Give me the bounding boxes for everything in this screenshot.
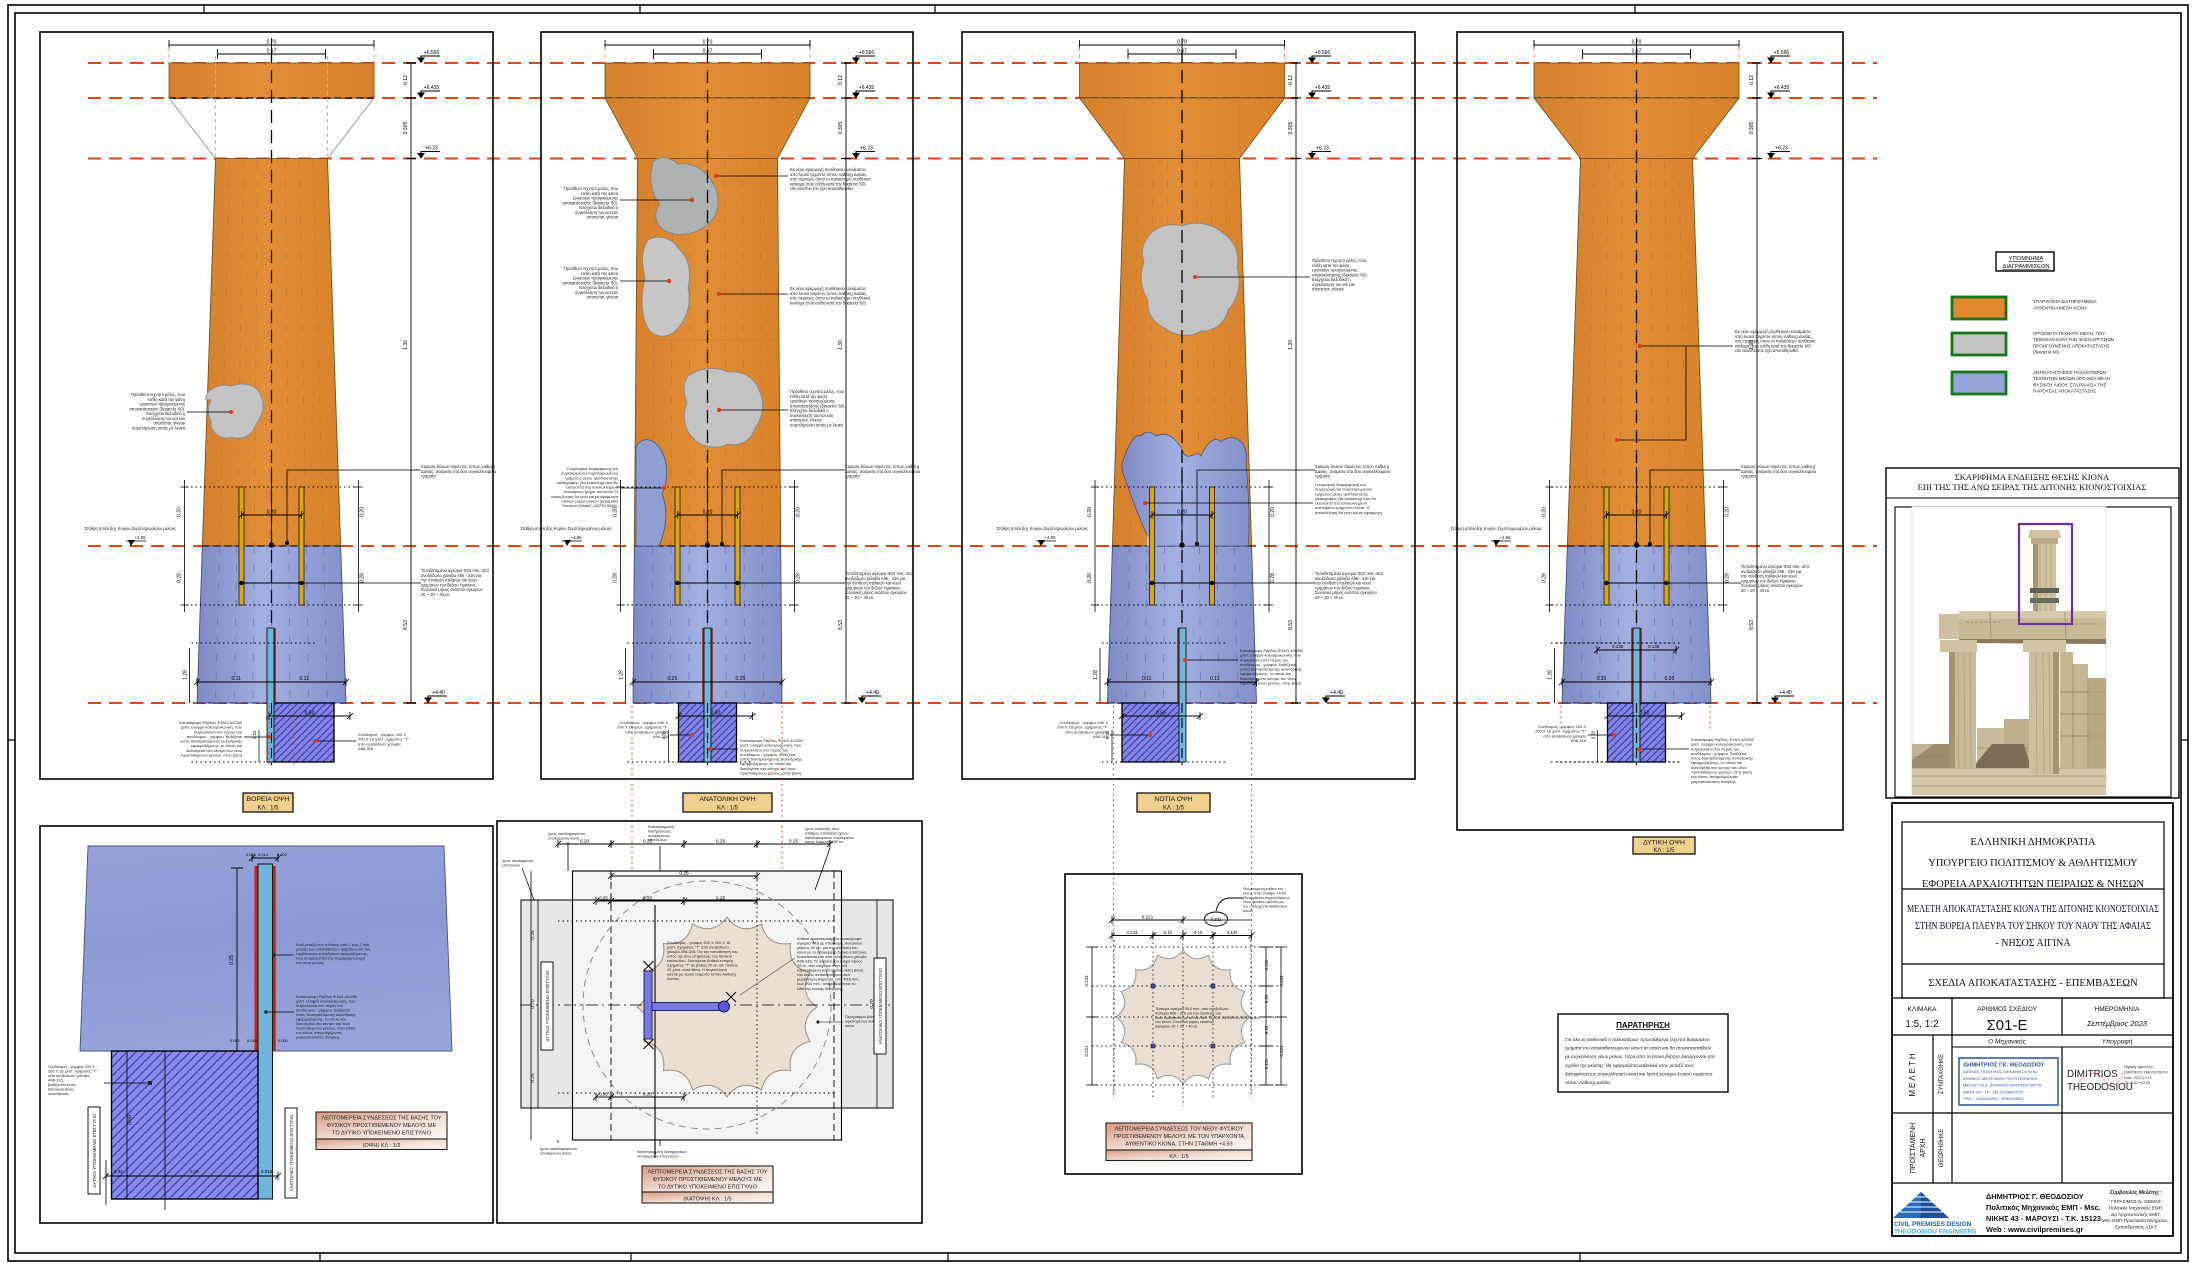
svg-text:0.11: 0.11 — [1142, 676, 1152, 682]
svg-text:0.016: 0.016 — [247, 1038, 258, 1043]
svg-text:ΔΙΑΓΡΑΜΜΙΣΕΩΝ: ΔΙΑΓΡΑΜΜΙΣΕΩΝ — [2002, 264, 2049, 270]
svg-text:0.25: 0.25 — [530, 930, 536, 940]
svg-text:0.233: 0.233 — [1084, 975, 1089, 987]
svg-text:0.28: 0.28 — [613, 573, 619, 583]
svg-text:1:5, 1:2: 1:5, 1:2 — [1905, 1019, 1939, 1030]
svg-text:ΣΤΗΝ ΒΟΡΕΙΑ ΠΛΕΥΡΑ ΤΟΥ ΣΗΚΟΥ Τ: ΣΤΗΝ ΒΟΡΕΙΑ ΠΛΕΥΡΑ ΤΟΥ ΣΗΚΟΥ ΤΟΥ ΝΑΟΥ ΤΗ… — [1915, 921, 2151, 932]
svg-text:0.231: 0.231 — [1211, 917, 1223, 922]
svg-text:ΜΕΛΕΤΗ: ΜΕΛΕΤΗ — [1908, 1051, 1917, 1096]
svg-text:ΛΕΠΤΟΜΕΡΕΙΑ ΣΥΝΔΕΣΕΩΣ ΤΟΥ ΝΕΟΥ: ΛΕΠΤΟΜΕΡΕΙΑ ΣΥΝΔΕΣΕΩΣ ΤΟΥ ΝΕΟΥ ΦΥΣΙΚΟΥ — [1115, 1127, 1244, 1133]
svg-text:0.20: 0.20 — [1725, 507, 1731, 517]
svg-text:ΑΝΑΤΟΛΙΚΟ ΥΠΟΚΕΙΜΕΝΟ ΕΠΙΣΤΥΛΙΟ: ΑΝΑΤΟΛΙΚΟ ΥΠΟΚΕΙΜΕΝΟ ΕΠΙΣΤΥΛΙΟ — [289, 1114, 294, 1191]
svg-text:CIVIL PREMISES DESIGN: CIVIL PREMISES DESIGN — [1894, 1221, 1972, 1228]
svg-text:ΚΛ : 1/5: ΚΛ : 1/5 — [1163, 806, 1185, 812]
svg-text:+4.85: +4.85 — [1044, 535, 1056, 540]
svg-text:ΤΟ ΔΥΤΙΚΟ ΥΠΟΚΕΙΜΕΝΟ ΕΠΙΣΤΥΛΙΟ: ΤΟ ΔΥΤΙΚΟ ΥΠΟΚΕΙΜΕΝΟ ΕΠΙΣΤΥΛΙΟ — [658, 1185, 758, 1191]
svg-text:+6.23: +6.23 — [860, 146, 873, 152]
svg-text:1.28: 1.28 — [1548, 670, 1554, 680]
svg-text:Σεπτέμβριος 2023: Σεπτέμβριος 2023 — [2086, 1019, 2148, 1028]
svg-text:0.001: 0.001 — [230, 1038, 241, 1043]
svg-text:ΑΝΑΤΟΛΙΚΟ ΥΠΟΚΕΙΜΕΝΟ ΕΠΙΣΤΥΛΙΟ: ΑΝΑΤΟΛΙΚΟ ΥΠΟΚΕΙΜΕΝΟ ΕΠΙΣΤΥΛΙΟ — [878, 967, 883, 1044]
svg-text:ΗΜΕΡΟΜΗΝΙΑ: ΗΜΕΡΟΜΗΝΙΑ — [2095, 1006, 2140, 1013]
svg-text:0.016: 0.016 — [261, 1169, 273, 1174]
svg-text:0.25: 0.25 — [530, 1073, 536, 1083]
svg-text:Στάθμη απόληξης Κυρίου Συμπληρ: Στάθμη απόληξης Κυρίου Συμπληρωμένου μέλ… — [85, 526, 176, 531]
svg-text:ΘΕΩΡΗΘΗΚΕ: ΘΕΩΡΗΘΗΚΕ — [1939, 1129, 1945, 1168]
svg-text:+6.435: +6.435 — [859, 85, 875, 91]
svg-text:0.25: 0.25 — [229, 955, 235, 965]
svg-text:ΔΥΤΙΚΟ ΥΠΟΚΕΙΜΕΝΟ ΕΠΙΣΤΥΛΙΟ: ΔΥΤΙΚΟ ΥΠΟΚΕΙΜΕΝΟ ΕΠΙΣΤΥΛΙΟ — [92, 1113, 97, 1187]
svg-text:ΛΕΠΤΟΜΕΡΕΙΑ ΣΥΝΔΕΣΕΩΣ ΤΗΣ ΒΑΣΗ: ΛΕΠΤΟΜΕΡΕΙΑ ΣΥΝΔΕΣΕΩΣ ΤΗΣ ΒΑΣΗΣ ΤΟΥ — [647, 1170, 767, 1176]
svg-text:Στάθμη απόληξης Κυρίου Συμπληρ: Στάθμη απόληξης Κυρίου Συμπληρωμένου μέλ… — [1451, 526, 1542, 531]
svg-text:ΑΡΙΘΜΟΣ ΣΧΕΔΙΟΥ: ΑΡΙΘΜΟΣ ΣΧΕΔΙΟΥ — [1977, 1006, 2038, 1013]
svg-text:ΚΛ : 1/5: ΚΛ : 1/5 — [257, 806, 279, 812]
svg-text:ΠΡΟΪΣΤΑΜΕΝΗ: ΠΡΟΪΣΤΑΜΕΝΗ — [1909, 1123, 1917, 1173]
svg-text:ΚΛ : 1/5: ΚΛ : 1/5 — [1169, 1154, 1188, 1160]
svg-text:0.10: 0.10 — [1264, 994, 1269, 1003]
svg-text:0.11: 0.11 — [300, 676, 310, 682]
svg-text:0.002: 0.002 — [246, 852, 257, 857]
svg-text:0.70: 0.70 — [530, 999, 536, 1009]
svg-text:0.12: 0.12 — [1749, 75, 1755, 85]
svg-text:ΕΛΛΗΝΙΚΗ ΔΗΜΟΚΡΑΤΙΑ: ΕΛΛΗΝΙΚΗ ΔΗΜΟΚΡΑΤΙΑ — [1970, 837, 2096, 848]
svg-text:0.135: 0.135 — [1648, 644, 1660, 649]
svg-text:0.28: 0.28 — [177, 573, 183, 583]
svg-text:1.30: 1.30 — [1288, 340, 1294, 350]
svg-text:ΛΕΠΤΟΜΕΡΕΙΑ ΣΥΝΔΕΣΕΩΣ ΤΗΣ ΒΑΣΗ: ΛΕΠΤΟΜΕΡΕΙΑ ΣΥΝΔΕΣΕΩΣ ΤΗΣ ΒΑΣΗΣ ΤΟΥ — [321, 1116, 441, 1122]
svg-text:Γεωμετρική διαμόρφωση τουσυγκε: Γεωμετρική διαμόρφωση τουσυγκεκριμένου σ… — [1315, 482, 1382, 515]
svg-text:ΕΠΙ ΤΗΣ ΤΗΣ ΑΝΩ ΣΕΙΡΑΣ ΤΗΣ ΔΙΤ: ΕΠΙ ΤΗΣ ΤΗΣ ΑΝΩ ΣΕΙΡΑΣ ΤΗΣ ΔΙΤΟΝΗΣ ΚΙΟΝΟ… — [1918, 482, 2147, 492]
svg-text:+4.85: +4.85 — [1499, 535, 1511, 540]
svg-text:Υπογραφή: Υπογραφή — [2102, 1039, 2133, 1046]
svg-text:+6.435: +6.435 — [1774, 85, 1790, 91]
svg-text:Πολιτικός Μηχανικός ΕΜΠ - Msc.: Πολιτικός Μηχανικός ΕΜΠ - Msc. — [1986, 1203, 2101, 1212]
svg-text:ΦΥΣΙΚΟΥ ΠΡΟΣΤΙΘΕΜΕΝΟΥ ΜΕΛΟΥΣ Μ: ΦΥΣΙΚΟΥ ΠΡΟΣΤΙΘΕΜΕΝΟΥ ΜΕΛΟΥΣ ΜΕ — [327, 1123, 437, 1129]
svg-text:ΝΙΚΗΣ 43 - ΜΑΡΟΥΣΙ - Τ.Κ. 1512: ΝΙΚΗΣ 43 - ΜΑΡΟΥΣΙ - Τ.Κ. 15123 — [1986, 1214, 2101, 1223]
svg-text:ΝΟΤΙΑ ΟΨΗ: ΝΟΤΙΑ ΟΨΗ — [1154, 796, 1192, 803]
svg-text:0.10: 0.10 — [1164, 930, 1173, 935]
svg-text:ΣΥΝΤΑΧΘΗΚΕ: ΣΥΝΤΑΧΘΗΚΕ — [1939, 1054, 1945, 1094]
svg-text:0.20: 0.20 — [1542, 507, 1548, 517]
svg-text:ΠΑΡΑΤΗΡΗΣΗ: ΠΑΡΑΤΗΡΗΣΗ — [1616, 1021, 1670, 1030]
svg-text:0.25: 0.25 — [736, 676, 746, 682]
svg-text:ΣΚΑΡΙΦΗΜΑ ΕΝΔΕΙΞΗΣ ΘΕΣΗΣ ΚΙΟΝΑ: ΣΚΑΡΙΦΗΜΑ ΕΝΔΕΙΞΗΣ ΘΕΣΗΣ ΚΙΟΝΑ — [1955, 472, 2110, 482]
svg-text:+6.566: +6.566 — [1315, 50, 1331, 56]
svg-text:0.12: 0.12 — [403, 75, 409, 85]
svg-text:0.305: 0.305 — [1749, 122, 1755, 135]
svg-text:+4.85: +4.85 — [570, 535, 582, 540]
svg-text:Κατακόρυφη Ράβδος Φ16/1.4/Χ250: Κατακόρυφη Ράβδος Φ16/1.4/Χ250χλστ. ελαφ… — [740, 738, 804, 775]
svg-text:0.20: 0.20 — [177, 507, 183, 517]
svg-text:ΥΠΟΜΝΗΜΑ: ΥΠΟΜΝΗΜΑ — [2009, 256, 2044, 262]
svg-text:ΥΠΑΡΧΟΝΤΑ ΔΙΑΤΗΡΟΥΜΕΝΑΑΥΘΕΝΤΙΚ: ΥΠΑΡΧΟΝΤΑ ΔΙΑΤΗΡΟΥΜΕΝΑΑΥΘΕΝΤΙΚΑ ΜΕΛΗ ΚΙΟ… — [2033, 299, 2096, 311]
svg-text:0.05: 0.05 — [599, 1092, 608, 1097]
svg-text:0.305: 0.305 — [403, 122, 409, 135]
svg-text:0.28: 0.28 — [1725, 573, 1731, 583]
svg-text:DIMITRIOS: DIMITRIOS — [2067, 1069, 2118, 1080]
svg-text:ΒΟΡΕΙΑ ΟΨΗ: ΒΟΡΕΙΑ ΟΨΗ — [247, 796, 290, 803]
svg-text:0.20: 0.20 — [643, 896, 653, 902]
svg-text:ΦΥΣΙΚΟΥ ΠΡΟΣΤΙΘΕΜΕΝΟΥ ΜΕΛΟΥΣ Μ: ΦΥΣΙΚΟΥ ΠΡΟΣΤΙΘΕΜΕΝΟΥ ΜΕΛΟΥΣ ΜΕ — [653, 1177, 763, 1183]
svg-text:8.53: 8.53 — [403, 620, 409, 630]
svg-text:0.20: 0.20 — [1270, 507, 1276, 517]
svg-text:0.25: 0.25 — [716, 896, 726, 902]
svg-text:+6.566: +6.566 — [859, 50, 875, 56]
svg-text:Web : www.civilpremises.gr: Web : www.civilpremises.gr — [1986, 1225, 2083, 1234]
svg-text:ΜΕΛΕΤΗ ΑΠΟΚΑΤΑΣΤΑΣΗΣ ΚΙΟΝΑ ΤΗΣ: ΜΕΛΕΤΗ ΑΠΟΚΑΤΑΣΤΑΣΗΣ ΚΙΟΝΑ ΤΗΣ ΔΙΤΟΝΗΣ Κ… — [1907, 904, 2159, 915]
svg-text:1.28: 1.28 — [1093, 670, 1099, 680]
svg-text:0.11: 0.11 — [1210, 676, 1220, 682]
svg-text:- ΝΗΣΟΣ ΑΙΓΙΝΑ: - ΝΗΣΟΣ ΑΙΓΙΝΑ — [1995, 938, 2071, 949]
svg-text:0.25: 0.25 — [789, 839, 799, 845]
svg-text:0.20: 0.20 — [1087, 507, 1093, 517]
svg-text:0.28: 0.28 — [796, 573, 802, 583]
svg-text:0.50: 0.50 — [1156, 711, 1166, 717]
svg-text:1.28: 1.28 — [619, 670, 625, 680]
svg-text:+4.85: +4.85 — [134, 535, 146, 540]
svg-text:Εκ νέου εφαρμογή συνθετικού κο: Εκ νέου εφαρμογή συνθετικού κονιάματοςαπ… — [790, 286, 871, 305]
svg-text:0.12: 0.12 — [838, 75, 844, 85]
svg-text:ΔΥΤΙΚΗ ΟΨΗ: ΔΥΤΙΚΗ ΟΨΗ — [1643, 840, 1685, 847]
svg-text:0.35: 0.35 — [1597, 676, 1607, 682]
svg-text:ΚΛ : 1/5: ΚΛ : 1/5 — [717, 806, 739, 812]
svg-text:ΑΥΘΕΝΤΙΚΟ ΚΙΟΝΑ, ΣΤΗΝ ΣΤΑΘΜΗ +: ΑΥΘΕΝΤΙΚΟ ΚΙΟΝΑ, ΣΤΗΝ ΣΤΑΘΜΗ +4.93 — [1125, 1142, 1232, 1148]
svg-text:0.221: 0.221 — [1084, 1045, 1089, 1057]
svg-text:0.20: 0.20 — [360, 507, 366, 517]
svg-text:ΣΧΕΔΙΑ ΑΠΟΚΑΤΑΣΤΑΣΗΣ - ΕΠΕΜΒΑΣ: ΣΧΕΔΙΑ ΑΠΟΚΑΤΑΣΤΑΣΗΣ - ΕΠΕΜΒΑΣΕΩΝ — [1928, 978, 2138, 989]
svg-text:0.131: 0.131 — [1227, 930, 1239, 935]
svg-text:ΤΟ ΔΥΤΙΚΟ ΥΠΟΚΕΙΜΕΝΟ ΕΠΙΣΤΥΛΙΟ: ΤΟ ΔΥΤΙΚΟ ΥΠΟΚΕΙΜΕΝΟ ΕΠΙΣΤΥΛΙΟ — [332, 1131, 432, 1137]
svg-text:0.221: 0.221 — [1142, 915, 1154, 920]
svg-text:+6.566: +6.566 — [1774, 50, 1790, 56]
svg-text:Σ01-Ε: Σ01-Ε — [1987, 1017, 2028, 1034]
svg-text:1.30: 1.30 — [403, 340, 409, 350]
svg-text:0.131: 0.131 — [1264, 959, 1269, 970]
svg-text:THEODOSIOU: THEODOSIOU — [2067, 1082, 2133, 1093]
svg-text:ΥΠΟΥΡΓΕΙΟ ΠΟΛΙΤΙΣΜΟΥ & ΑΘΛΗΤΙΣ: ΥΠΟΥΡΓΕΙΟ ΠΟΛΙΤΙΣΜΟΥ & ΑΘΛΗΤΙΣΜΟΥ — [1928, 858, 2138, 869]
svg-text:(ΚΑΤΟΨΗ) ΚΛ : 1/5: (ΚΑΤΟΨΗ) ΚΛ : 1/5 — [683, 1197, 731, 1203]
svg-text:+6.23: +6.23 — [1316, 146, 1329, 152]
svg-text:0.014: 0.014 — [258, 852, 269, 857]
svg-text:Στάθμη απόληξης Κυρίου Συμπληρ: Στάθμη απόληξης Κυρίου Συμπληρωμένου μέλ… — [521, 526, 612, 531]
svg-text:0.28: 0.28 — [1087, 573, 1093, 583]
svg-text:ΔΥΤΙΚΟ ΥΠΟΚΕΙΜΕΝΟ ΕΠΙΣΤΥΛΙΟ: ΔΥΤΙΚΟ ΥΠΟΚΕΙΜΕΝΟ ΕΠΙΣΤΥΛΙΟ — [545, 970, 550, 1041]
svg-text:8.53: 8.53 — [1749, 620, 1755, 630]
svg-text:0.20: 0.20 — [613, 507, 619, 517]
svg-text:8.53: 8.53 — [838, 620, 844, 630]
svg-text:Σύμβουλος Μελέτης :: Σύμβουλος Μελέτης : — [2109, 1190, 2163, 1196]
svg-text:0.305: 0.305 — [838, 122, 844, 135]
svg-text:ΑΝΑΤΟΛΙΚΗ ΟΨΗ: ΑΝΑΤΟΛΙΚΗ ΟΨΗ — [699, 796, 755, 803]
svg-text:THEODOSIOU ENGINEERS: THEODOSIOU ENGINEERS — [1894, 1229, 1977, 1236]
svg-text:ΕΦΟΡΕΙΑ ΑΡΧΑΙΟΤΗΤΩΝ ΠΕΙΡΑΙΩΣ &: ΕΦΟΡΕΙΑ ΑΡΧΑΙΟΤΗΤΩΝ ΠΕΙΡΑΙΩΣ & ΝΗΣΩΝ — [1922, 879, 2144, 890]
svg-text:0.18: 0.18 — [1264, 1025, 1269, 1034]
svg-text:0.33: 0.33 — [252, 730, 257, 739]
svg-text:Κατακόρυφη Ράβδος Φ16/1.4/Χ250: Κατακόρυφη Ράβδος Φ16/1.4/Χ250χλστ. ελαφ… — [1240, 648, 1304, 685]
svg-text:8.53: 8.53 — [1288, 620, 1294, 630]
svg-text:Κατακόρυφη Ράβδος Φ16/1.4/Χ250: Κατακόρυφη Ράβδος Φ16/1.4/Χ250χλστ. ελαφ… — [179, 720, 243, 757]
svg-text:Στάθμη απόληξης Κυρίου Συμπληρ: Στάθμη απόληξης Κυρίου Συμπληρωμένου μέλ… — [997, 526, 1088, 531]
svg-text:+4.40: +4.40 — [1779, 690, 1792, 696]
svg-text:0.11: 0.11 — [232, 676, 242, 682]
svg-text:0.001: 0.001 — [278, 1038, 289, 1043]
svg-text:+6.566: +6.566 — [424, 50, 440, 56]
svg-text:+6.23: +6.23 — [425, 146, 438, 152]
svg-text:0.20: 0.20 — [796, 507, 802, 517]
svg-text:0.25: 0.25 — [668, 676, 678, 682]
svg-text:0.50: 0.50 — [1640, 711, 1650, 717]
svg-text:Ο Μηχανικός: Ο Μηχανικός — [1988, 1038, 2027, 1046]
svg-text:0.05: 0.05 — [599, 896, 608, 901]
svg-text:0.131: 0.131 — [1264, 1058, 1269, 1069]
svg-text:0.50: 0.50 — [127, 1115, 133, 1125]
svg-text:ΔΗΜΗΤΡΙΟΣ Γ. ΘΕΟΔΟΣΙΟΥ: ΔΗΜΗΤΡΙΟΣ Γ. ΘΕΟΔΟΣΙΟΥ — [1986, 1192, 2084, 1201]
svg-text:+6.435: +6.435 — [424, 85, 440, 91]
svg-text:ΚΛΙΜΑΚΑ: ΚΛΙΜΑΚΑ — [1908, 1006, 1938, 1013]
svg-text:0.28: 0.28 — [1270, 573, 1276, 583]
svg-text:0.002: 0.002 — [277, 852, 288, 857]
svg-text:0.25: 0.25 — [679, 871, 689, 877]
svg-text:(ΟΨΗ) ΚΛ : 1/2: (ΟΨΗ) ΚΛ : 1/2 — [363, 1143, 401, 1149]
svg-text:ΚΛ : 1/5: ΚΛ : 1/5 — [1653, 848, 1675, 854]
svg-text:0.12: 0.12 — [1288, 75, 1294, 85]
svg-text:+6.23: +6.23 — [1775, 146, 1788, 152]
svg-text:0.221: 0.221 — [1279, 1045, 1284, 1057]
svg-text:0.20: 0.20 — [580, 839, 590, 845]
svg-text:0.35: 0.35 — [1665, 676, 1675, 682]
svg-text:ΔΗΜΗΤΡΙΟΣ ΓΚ. ΘΕΟΔΟΣΙΟΥ: ΔΗΜΗΤΡΙΟΣ ΓΚ. ΘΕΟΔΟΣΙΟΥ — [1963, 1063, 2045, 1069]
svg-text:0.233: 0.233 — [1279, 975, 1284, 987]
svg-text:0.25: 0.25 — [716, 839, 726, 845]
svg-text:ΑΡΧΗ: ΑΡΧΗ — [1920, 1138, 1927, 1157]
svg-text:0.32: 0.32 — [114, 1169, 123, 1174]
svg-text:0.28: 0.28 — [360, 573, 366, 583]
svg-text:0.135: 0.135 — [1612, 644, 1624, 649]
svg-text:0.10: 0.10 — [1194, 930, 1203, 935]
svg-text:0.305: 0.305 — [1288, 122, 1294, 135]
svg-text:ΠΡΟΣΤΙΘΕΜΕΝΟΥ ΜΕΛΟΥΣ ΜΕ ΤΟΝ ΥΠ: ΠΡΟΣΤΙΘΕΜΕΝΟΥ ΜΕΛΟΥΣ ΜΕ ΤΟΝ ΥΠΑΡΧΟΝΤΑ — [1114, 1134, 1245, 1140]
svg-text:1.28: 1.28 — [183, 670, 189, 680]
svg-text:Σύνδεσμος - γόμφος 200 Χ 200 Χ: Σύνδεσμος - γόμφος 200 Χ 200 Χ 16χλστ. σ… — [667, 940, 738, 981]
svg-text:0.20: 0.20 — [643, 1092, 653, 1098]
svg-text:0.50: 0.50 — [711, 711, 721, 717]
svg-text:+4.40: +4.40 — [1330, 690, 1343, 696]
svg-text:0.16: 0.16 — [190, 1169, 199, 1174]
svg-text:0.131: 0.131 — [1127, 930, 1139, 935]
svg-text:+4.40: +4.40 — [432, 690, 445, 696]
svg-text:0.28: 0.28 — [1542, 573, 1548, 583]
svg-text:0.50: 0.50 — [305, 711, 315, 717]
svg-text:1.30: 1.30 — [838, 340, 844, 350]
svg-text:+4.40: +4.40 — [866, 690, 879, 696]
svg-text:+6.435: +6.435 — [1315, 85, 1331, 91]
